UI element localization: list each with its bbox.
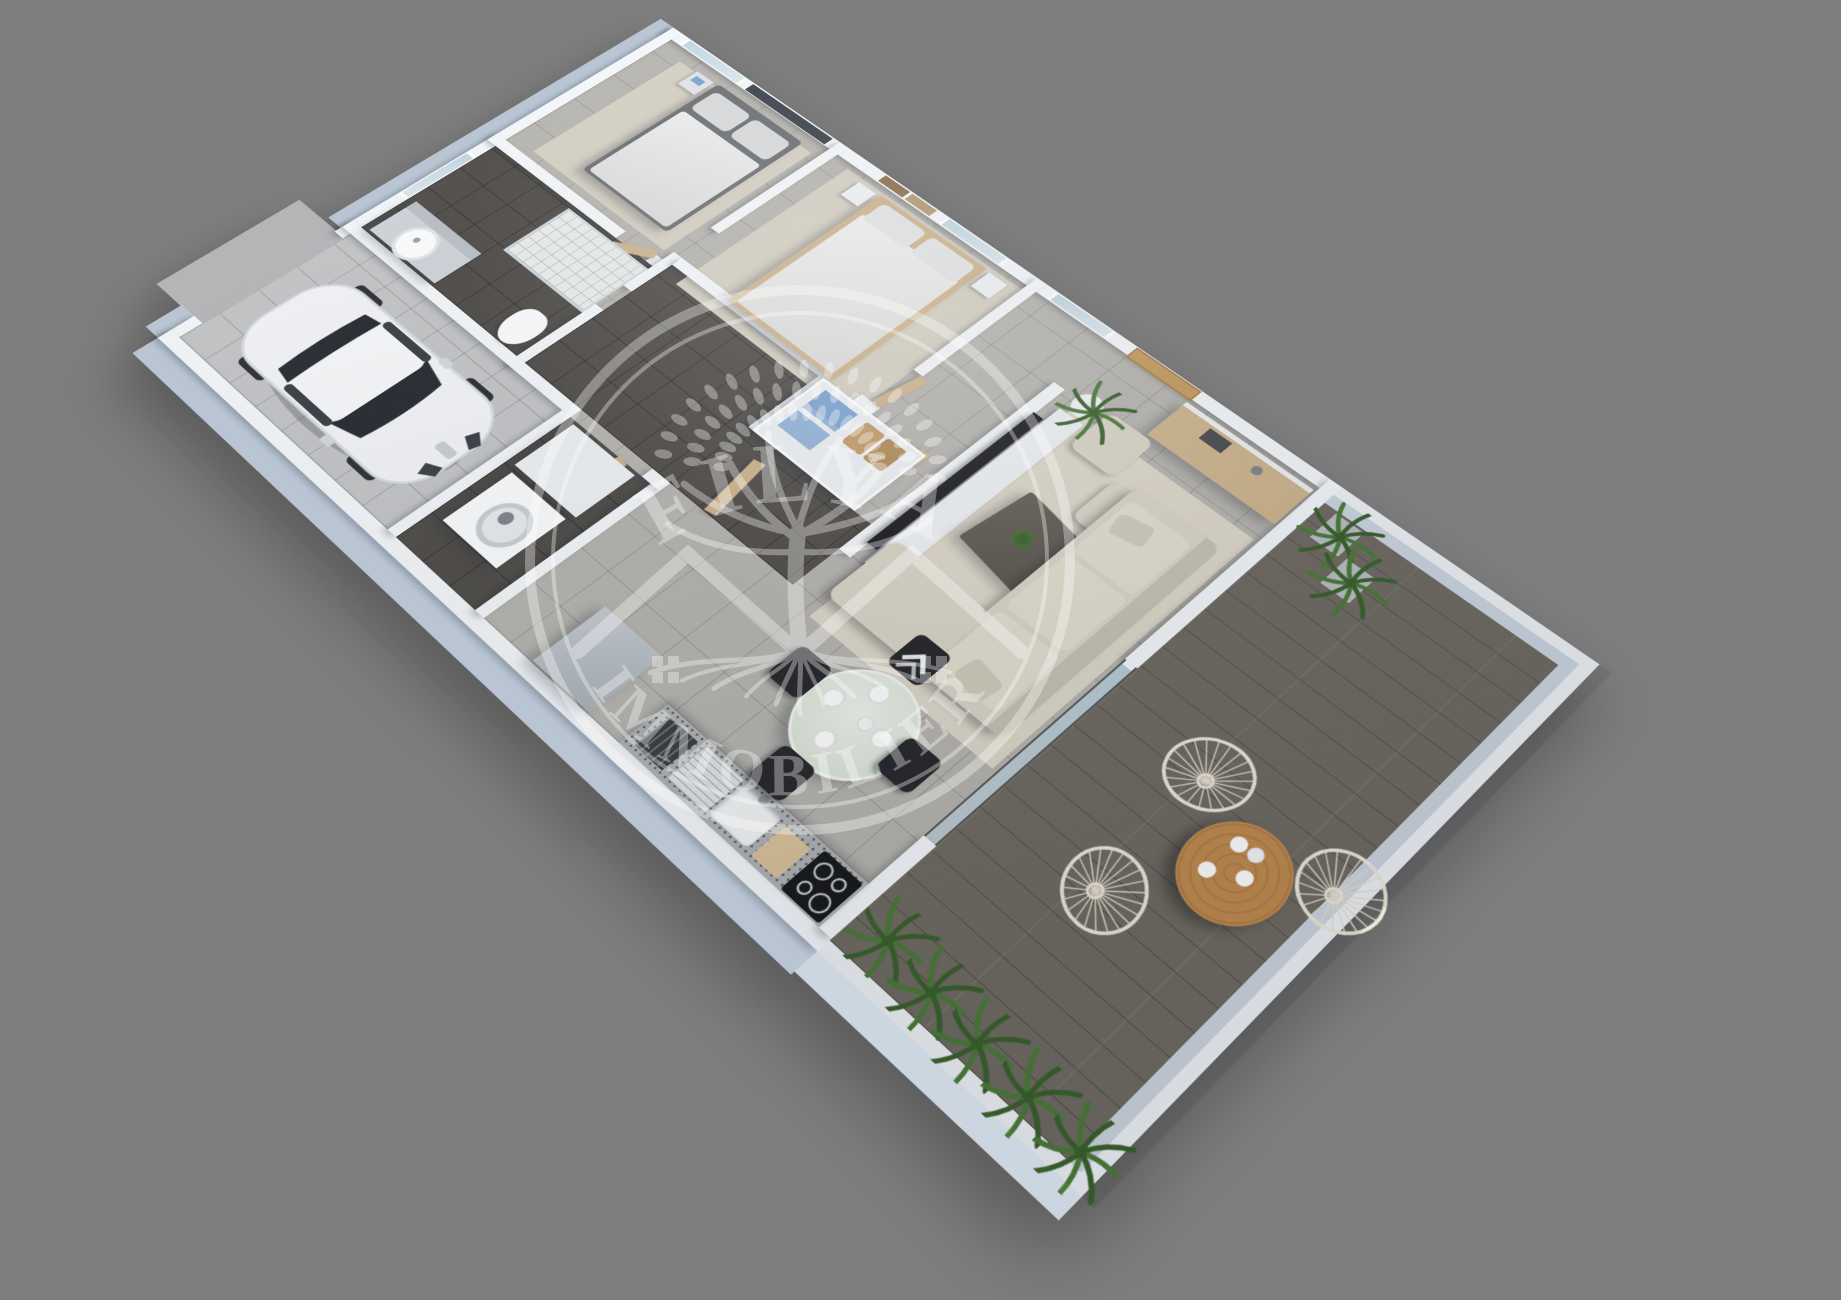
floorplan-render: FILYA IMMOBILIER: [0, 0, 1841, 1300]
floor-plan: [158, 27, 1612, 1208]
scene-3d: [0, 0, 1841, 1300]
